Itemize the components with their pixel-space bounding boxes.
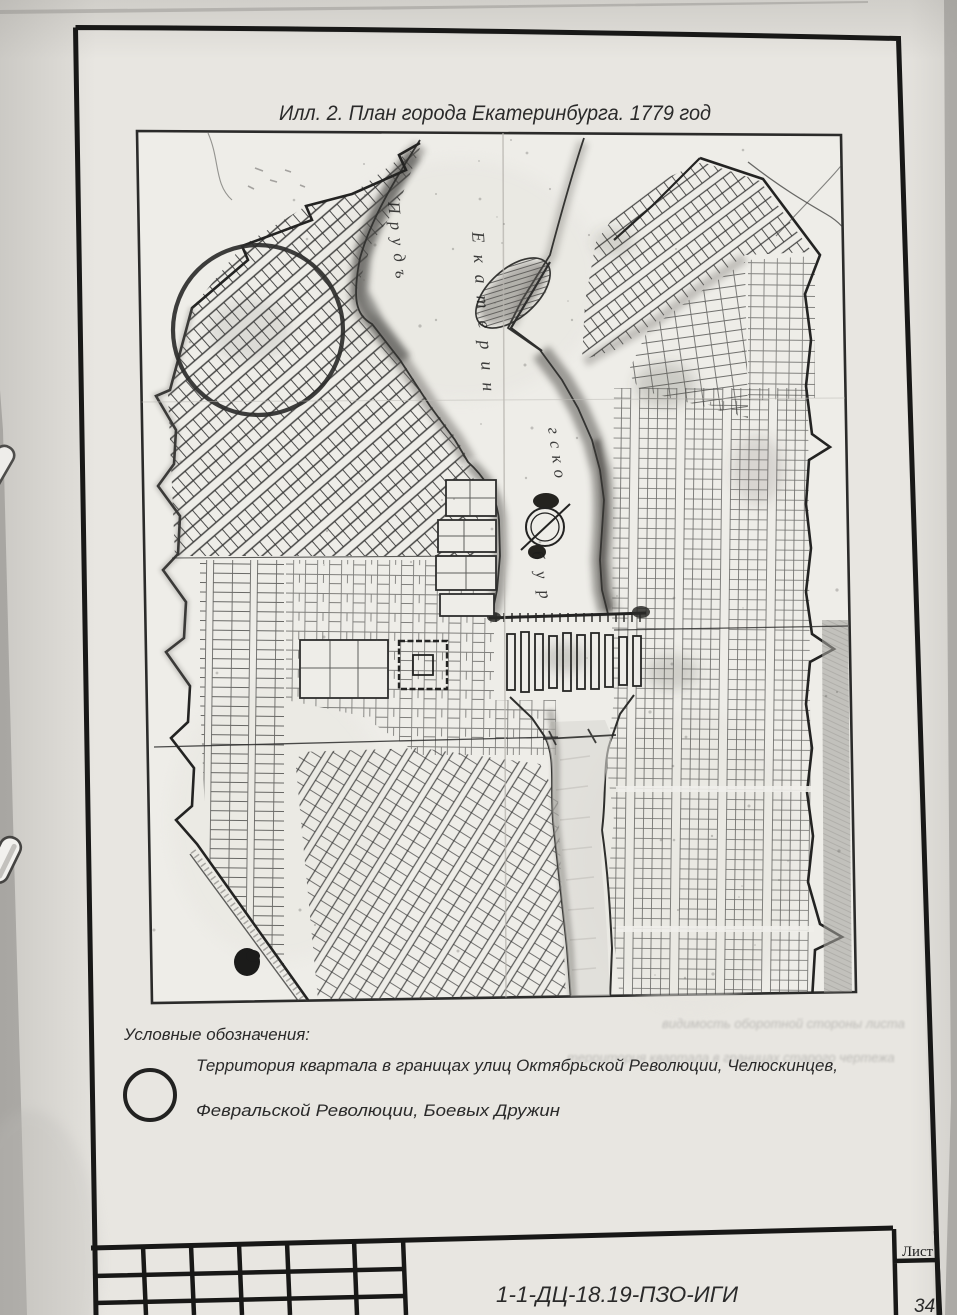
svg-text:1-1-ДЦ-18.19-ПЗО-ИГИ: 1-1-ДЦ-18.19-ПЗО-ИГИ [496, 1282, 738, 1307]
svg-text:видимость оборотной стороны ли: видимость оборотной стороны листа [662, 1016, 905, 1031]
svg-text:Февральской Революции, Боевых: Февральской Революции, Боевых Дружин [196, 1102, 560, 1120]
svg-text:34: 34 [914, 1296, 935, 1315]
svg-text:Условные обозначения:: Условные обозначения: [123, 1025, 310, 1044]
svg-text:Илл. 2. План города Екатеринбу: Илл. 2. План города Екатеринбурга. 1779 … [279, 101, 711, 125]
svg-text:территория квартала в границах: территория квартала в границах старого ч… [567, 1050, 895, 1065]
svg-text:Лист: Лист [902, 1244, 933, 1260]
